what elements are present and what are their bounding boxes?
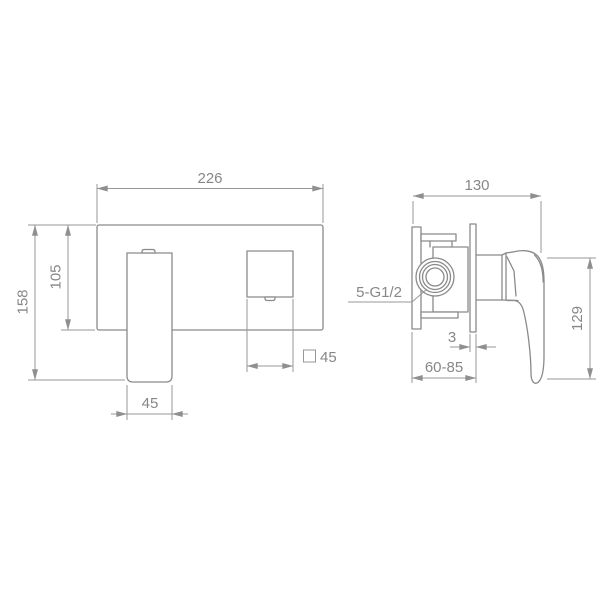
side-top-clip — [421, 234, 456, 241]
side-handle-sleeve — [476, 255, 502, 300]
dim-plate-width: 226 — [97, 170, 323, 223]
dim-side-height-label: 129 — [569, 306, 586, 331]
front-spout-top-tab — [142, 250, 155, 254]
technical-drawing-page: 226 158 105 45 — [0, 0, 600, 600]
side-inlet-port-circles — [416, 258, 454, 296]
side-view: 130 129 3 60-85 5-G1/2 — [348, 177, 596, 383]
faucet-dimension-drawing: 226 158 105 45 — [0, 0, 600, 600]
side-wall-plate — [470, 224, 476, 332]
dim-installation-depth-label: 60-85 — [425, 359, 463, 376]
dim-spout-width: 45 — [111, 385, 188, 420]
dim-side-width-label: 130 — [464, 177, 489, 194]
side-bottom-clip — [421, 312, 458, 318]
front-handle-bottom-tab — [265, 297, 275, 301]
dim-spout-width-label: 45 — [142, 395, 159, 412]
front-handle-square — [247, 251, 293, 297]
dim-handle-square-label: 45 — [320, 349, 337, 366]
thread-connection-label: 5-G1/2 — [356, 284, 402, 301]
dim-installation-depth: 60-85 — [412, 332, 476, 383]
side-lever-handle — [507, 251, 545, 384]
dim-plate-height: 105 — [48, 225, 96, 330]
dim-wall-plate-thickness-label: 3 — [448, 329, 456, 346]
dim-overall-height-label: 158 — [15, 289, 32, 314]
front-spout — [127, 253, 172, 382]
front-view: 226 158 105 45 — [15, 170, 337, 420]
dim-plate-height-label: 105 — [48, 264, 65, 289]
dim-plate-width-label: 226 — [197, 170, 222, 187]
square-symbol-icon — [304, 350, 316, 362]
dim-side-height: 129 — [547, 258, 596, 379]
